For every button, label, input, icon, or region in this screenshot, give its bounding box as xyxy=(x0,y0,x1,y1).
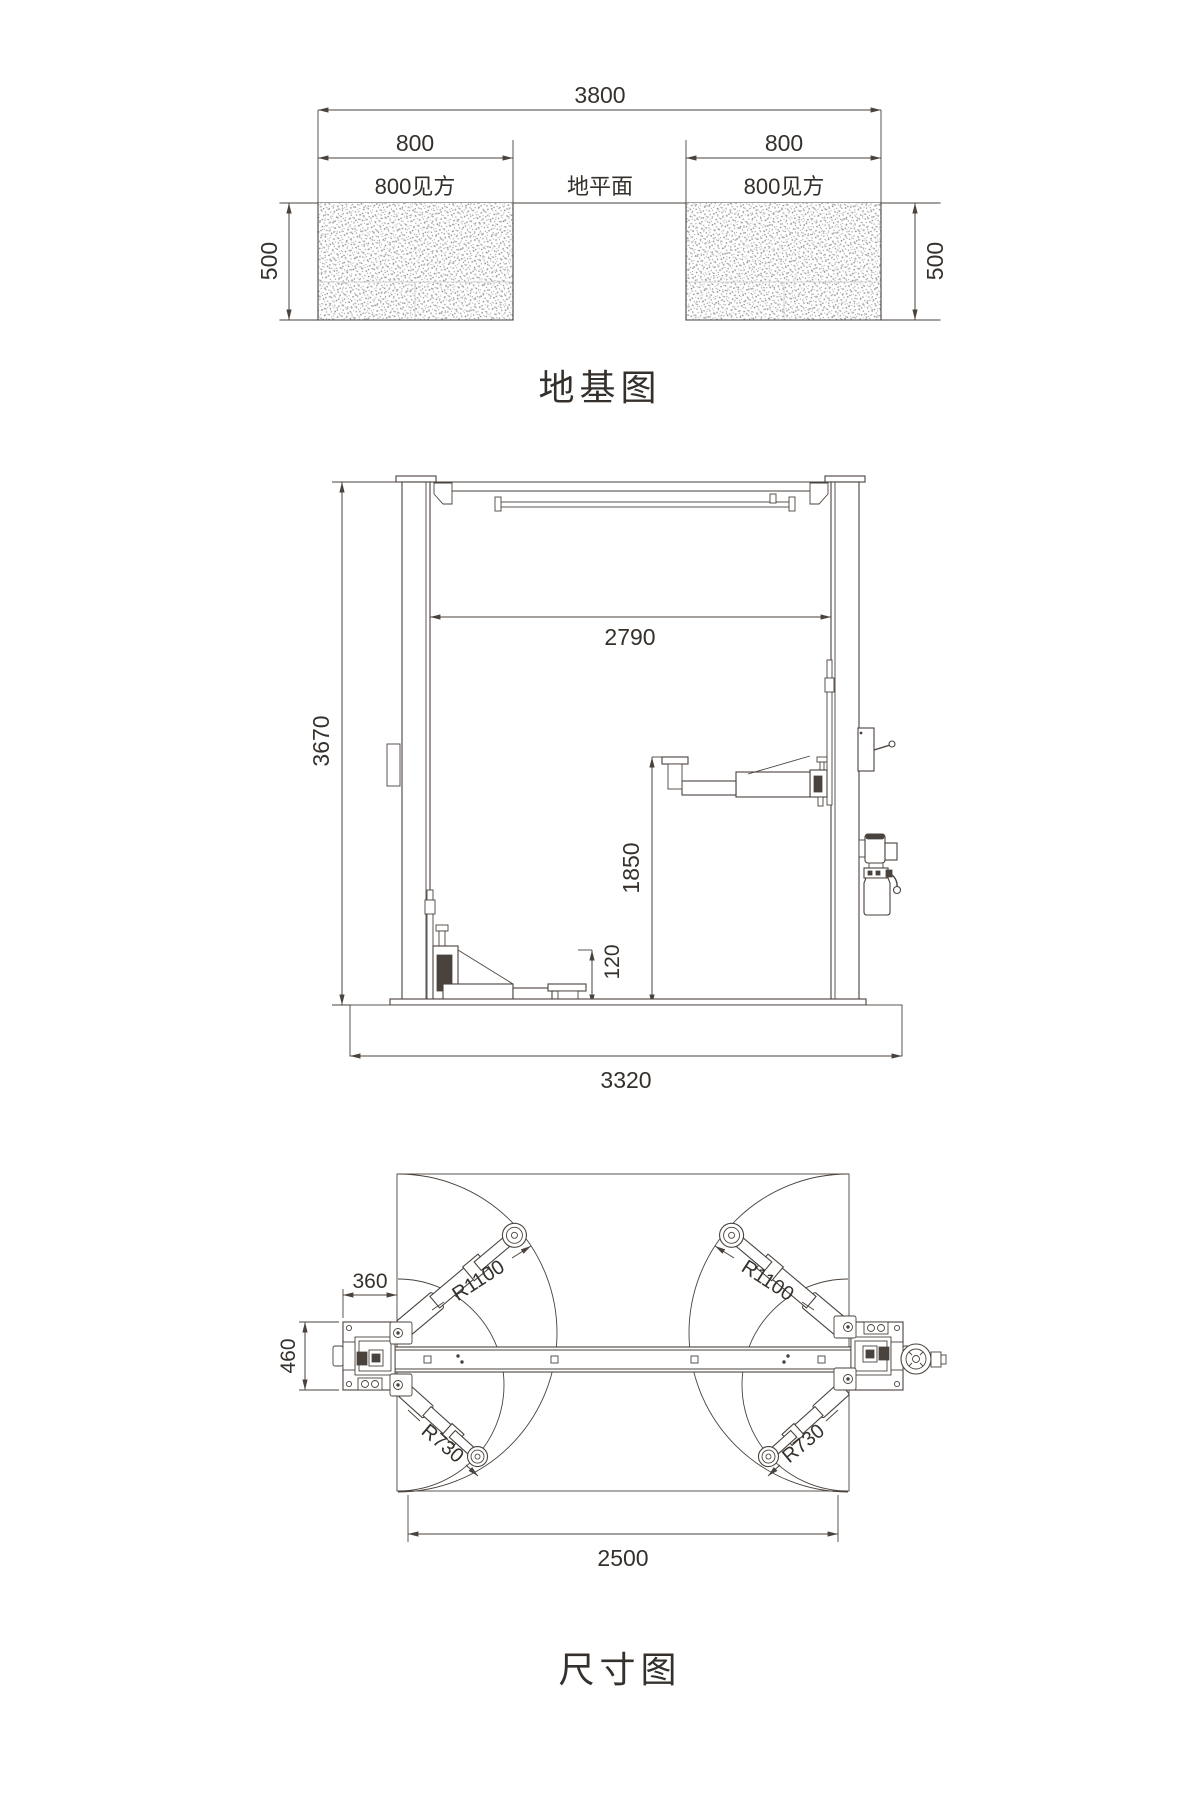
plan-power-unit xyxy=(901,1344,946,1374)
safety-bar-end-left xyxy=(495,497,501,511)
two-post-lift-drawing: 3800 800 800 800见方 地平面 800见方 xyxy=(0,0,1200,1800)
foundation-diagram: 3800 800 800 800见方 地平面 800见方 xyxy=(256,82,948,408)
swing-arms-right xyxy=(689,1174,851,1492)
power-unit xyxy=(859,834,901,915)
dim-text-depth-right: 500 xyxy=(922,242,948,280)
label-ground-plane: 地平面 xyxy=(567,174,633,199)
elevation-view: 3670 2790 120 xyxy=(308,476,902,1093)
dim-text-span: 2500 xyxy=(597,1545,648,1571)
dim-text-base-depth: 460 xyxy=(277,1338,300,1373)
left-carriage-lowered-arm xyxy=(425,890,586,1002)
safety-bar-end-right xyxy=(789,497,795,511)
dim-text-pad-width-left: 800 xyxy=(396,130,434,156)
dim-text-total-width: 3800 xyxy=(574,82,625,108)
plan-title: 尺寸图 xyxy=(558,1649,681,1690)
dim-text-lift-height: 1850 xyxy=(618,842,644,893)
foundation-slab xyxy=(350,1005,902,1056)
plan-view: R1100 R1100 R730 R730 360 460 2500 xyxy=(277,1174,946,1690)
dim-text-inner-width: 2790 xyxy=(604,624,655,650)
label-pad-square-left: 800见方 xyxy=(375,174,456,199)
dim-text-height: 3670 xyxy=(308,715,334,766)
beam-gusset-right xyxy=(810,483,828,504)
dim-text-depth-left: 500 xyxy=(256,242,282,280)
overhead-safety-bar xyxy=(500,502,790,507)
dim-text-base-width: 3320 xyxy=(600,1067,651,1093)
label-pad-square-right: 800见方 xyxy=(744,174,825,199)
foundation-title: 地基图 xyxy=(538,367,661,408)
swing-arms-left xyxy=(395,1174,557,1492)
junction-box xyxy=(885,843,897,860)
left-column-cover-box xyxy=(387,744,400,786)
lock-release-box xyxy=(858,728,895,771)
foundation-pad-right xyxy=(686,203,881,320)
raised-arm-pad xyxy=(662,757,688,764)
release-handle xyxy=(874,745,890,750)
right-column-cap xyxy=(825,476,865,482)
base-cross-beam xyxy=(395,1347,851,1372)
left-column-cap xyxy=(396,476,436,482)
plan-motor xyxy=(901,1344,931,1374)
oil-tank xyxy=(864,878,890,915)
technical-drawing-page: 3800 800 800 800见方 地平面 800见方 xyxy=(0,0,1200,1800)
right-carriage-raised-arm xyxy=(662,660,834,806)
safety-bar-hanger xyxy=(770,494,776,503)
lowered-arm-pad xyxy=(548,984,586,991)
floor-plate xyxy=(390,999,866,1005)
dim-text-pad-min-height: 120 xyxy=(601,944,624,979)
foundation-pad-left xyxy=(318,203,513,320)
dim-text-pad-width-right: 800 xyxy=(765,130,803,156)
beam-gusset-left xyxy=(434,483,452,504)
dim-text-column-width: 360 xyxy=(352,1270,387,1293)
